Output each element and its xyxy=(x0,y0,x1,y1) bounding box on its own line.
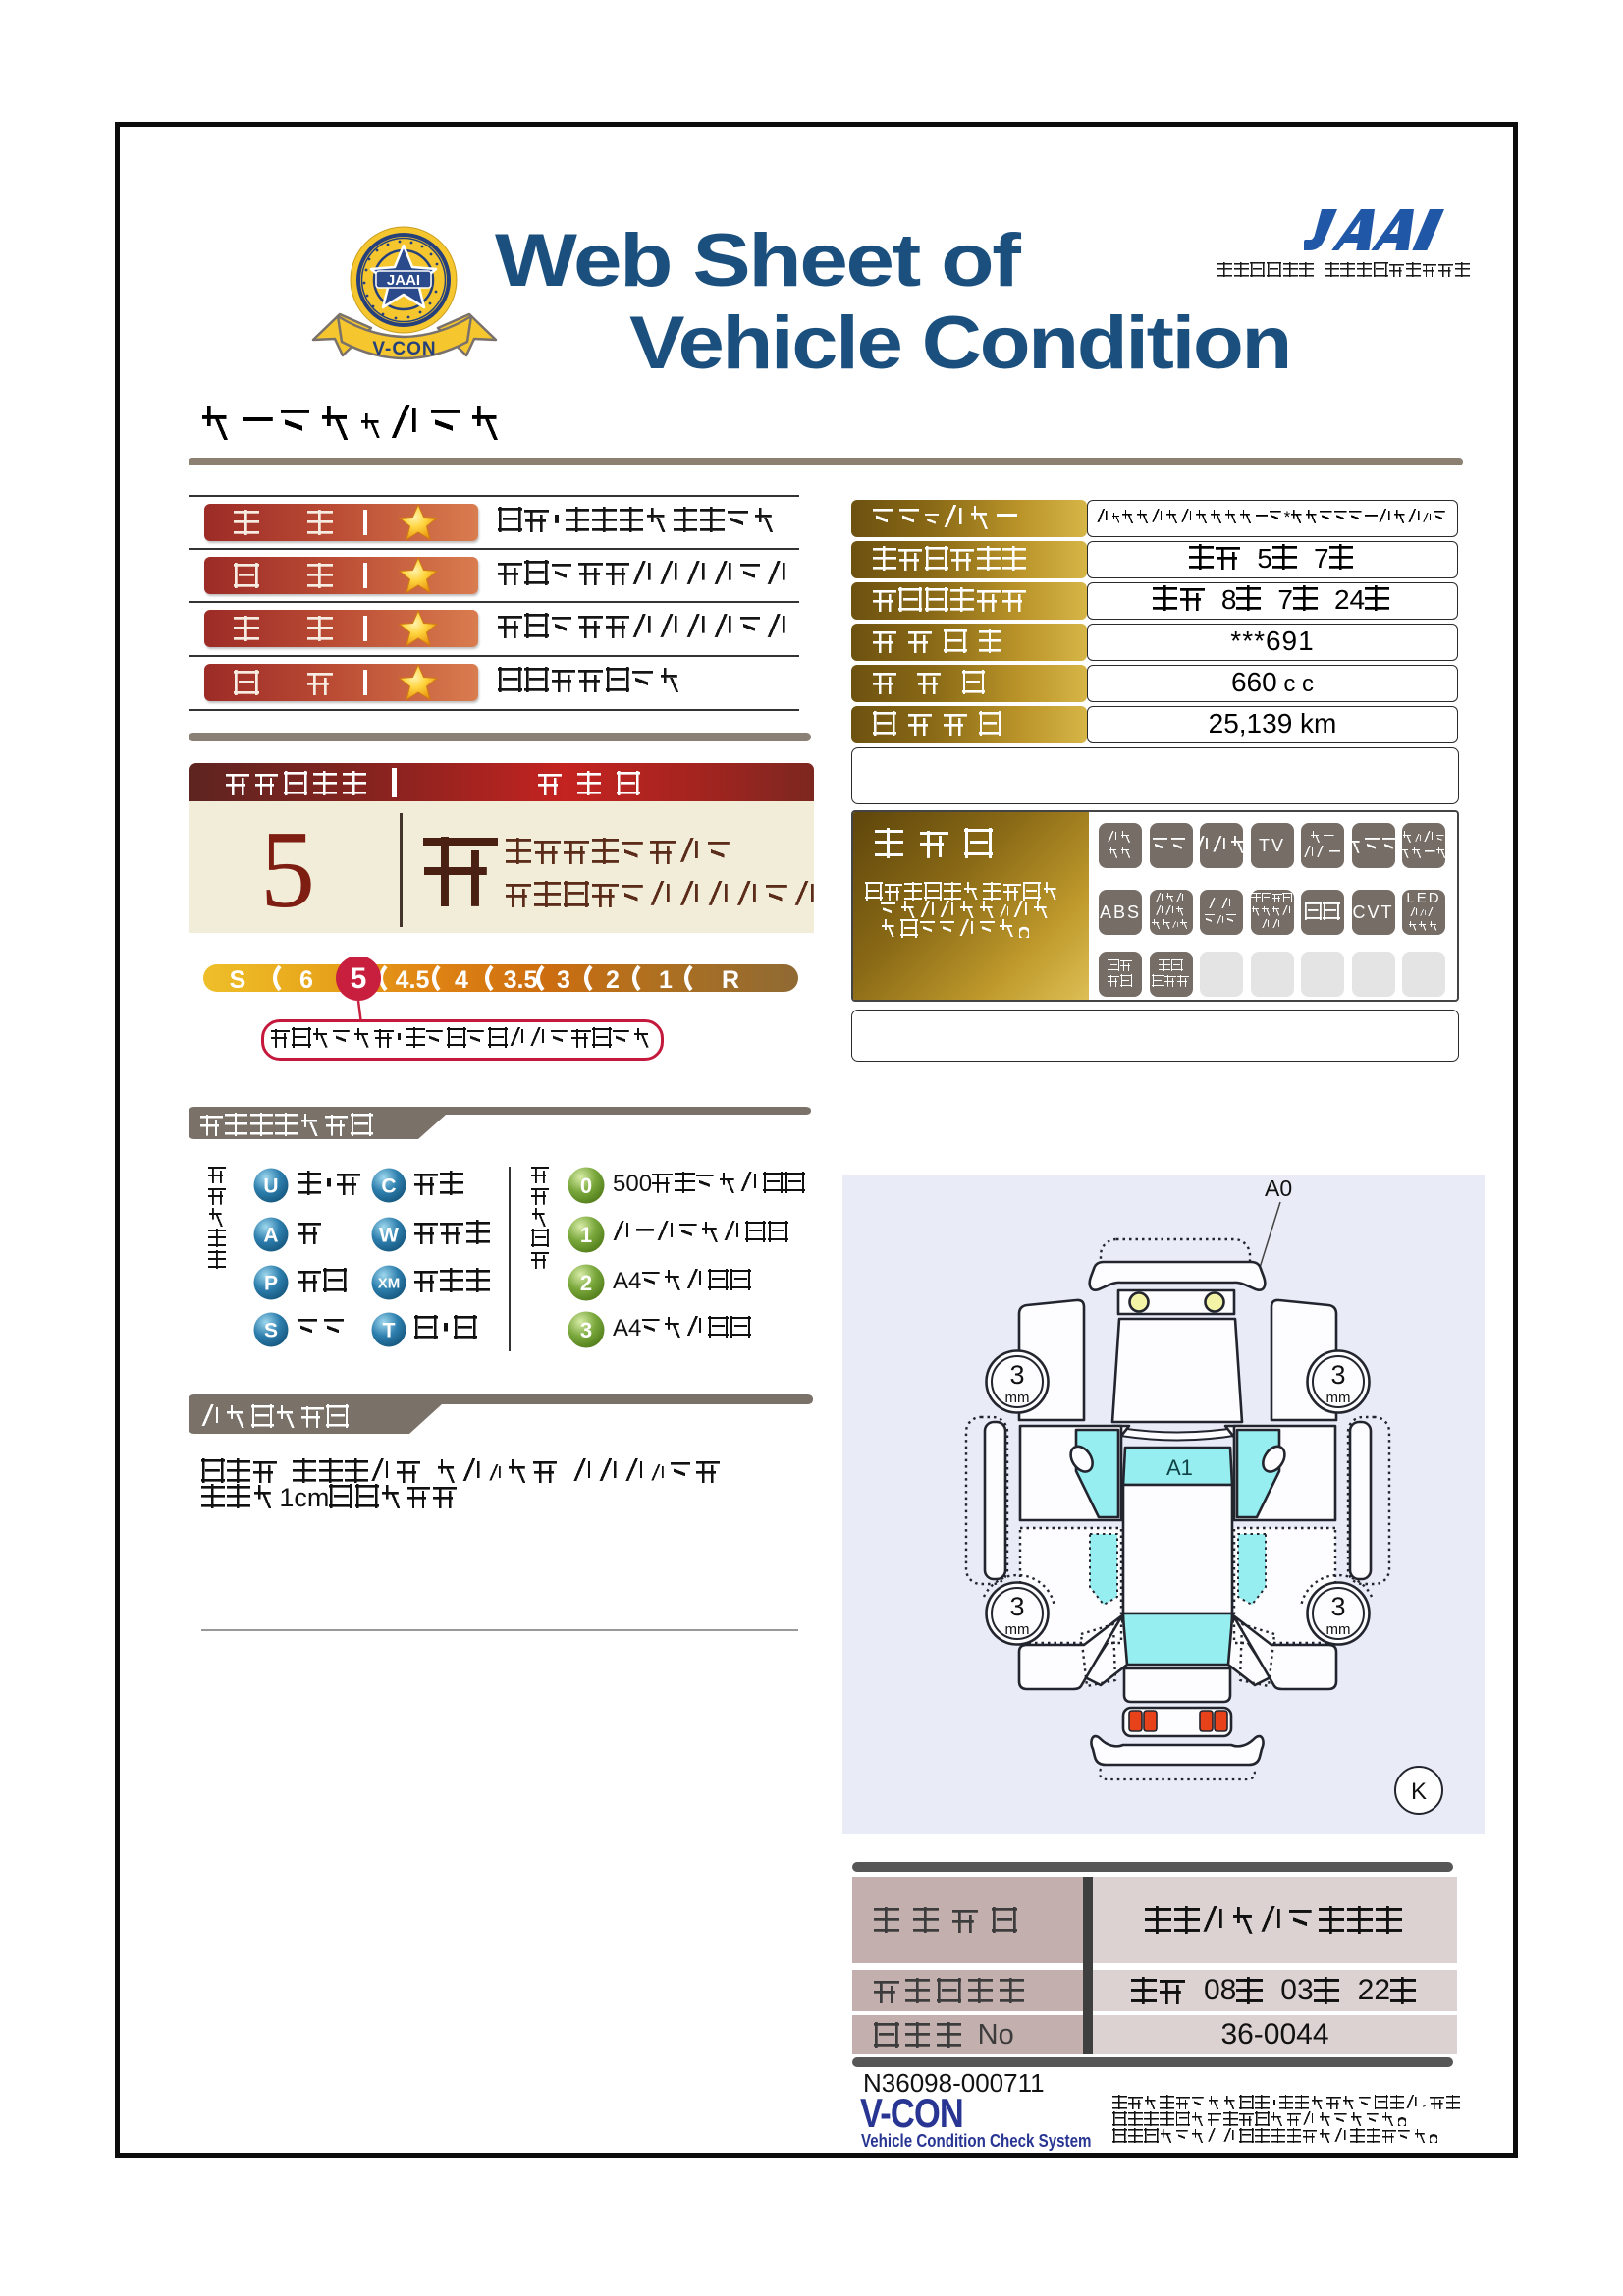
svg-text:C: C xyxy=(381,1175,396,1198)
svg-text:1: 1 xyxy=(659,966,673,994)
svg-text:S: S xyxy=(230,966,246,994)
svg-text:3: 3 xyxy=(580,1318,592,1342)
svg-text:JAAI: JAAI xyxy=(387,272,420,289)
svg-text:mm: mm xyxy=(1005,1390,1030,1406)
svg-text:3: 3 xyxy=(1330,1592,1345,1621)
svg-text:S: S xyxy=(264,1320,278,1342)
svg-text:R: R xyxy=(722,966,739,994)
svg-text:A: A xyxy=(263,1225,278,1247)
svg-text:V-CON: V-CON xyxy=(372,339,436,359)
svg-text:A1: A1 xyxy=(1166,1455,1193,1480)
svg-text:0: 0 xyxy=(580,1174,592,1198)
svg-text:A0: A0 xyxy=(1265,1175,1292,1201)
svg-text:T: T xyxy=(383,1320,396,1342)
svg-text:3: 3 xyxy=(557,966,570,994)
svg-text:1: 1 xyxy=(580,1223,592,1247)
svg-text:3: 3 xyxy=(1009,1360,1024,1390)
svg-text:mm: mm xyxy=(1326,1621,1351,1638)
svg-text:mm: mm xyxy=(1005,1621,1030,1638)
svg-text:3: 3 xyxy=(1009,1592,1024,1621)
svg-text:W: W xyxy=(379,1225,399,1247)
svg-text:2: 2 xyxy=(580,1271,592,1295)
svg-text:U: U xyxy=(263,1175,278,1198)
svg-text:mm: mm xyxy=(1326,1390,1351,1406)
svg-text:4: 4 xyxy=(455,966,468,994)
svg-text:2: 2 xyxy=(606,966,620,994)
svg-text:5: 5 xyxy=(351,962,367,995)
svg-text:3: 3 xyxy=(1330,1360,1345,1390)
svg-text:P: P xyxy=(264,1273,278,1295)
svg-text:6: 6 xyxy=(299,966,313,994)
svg-text:K: K xyxy=(1411,1778,1427,1805)
svg-text:3.5: 3.5 xyxy=(504,966,538,994)
svg-text:XM: XM xyxy=(378,1275,401,1291)
svg-text:4.5: 4.5 xyxy=(396,966,430,994)
